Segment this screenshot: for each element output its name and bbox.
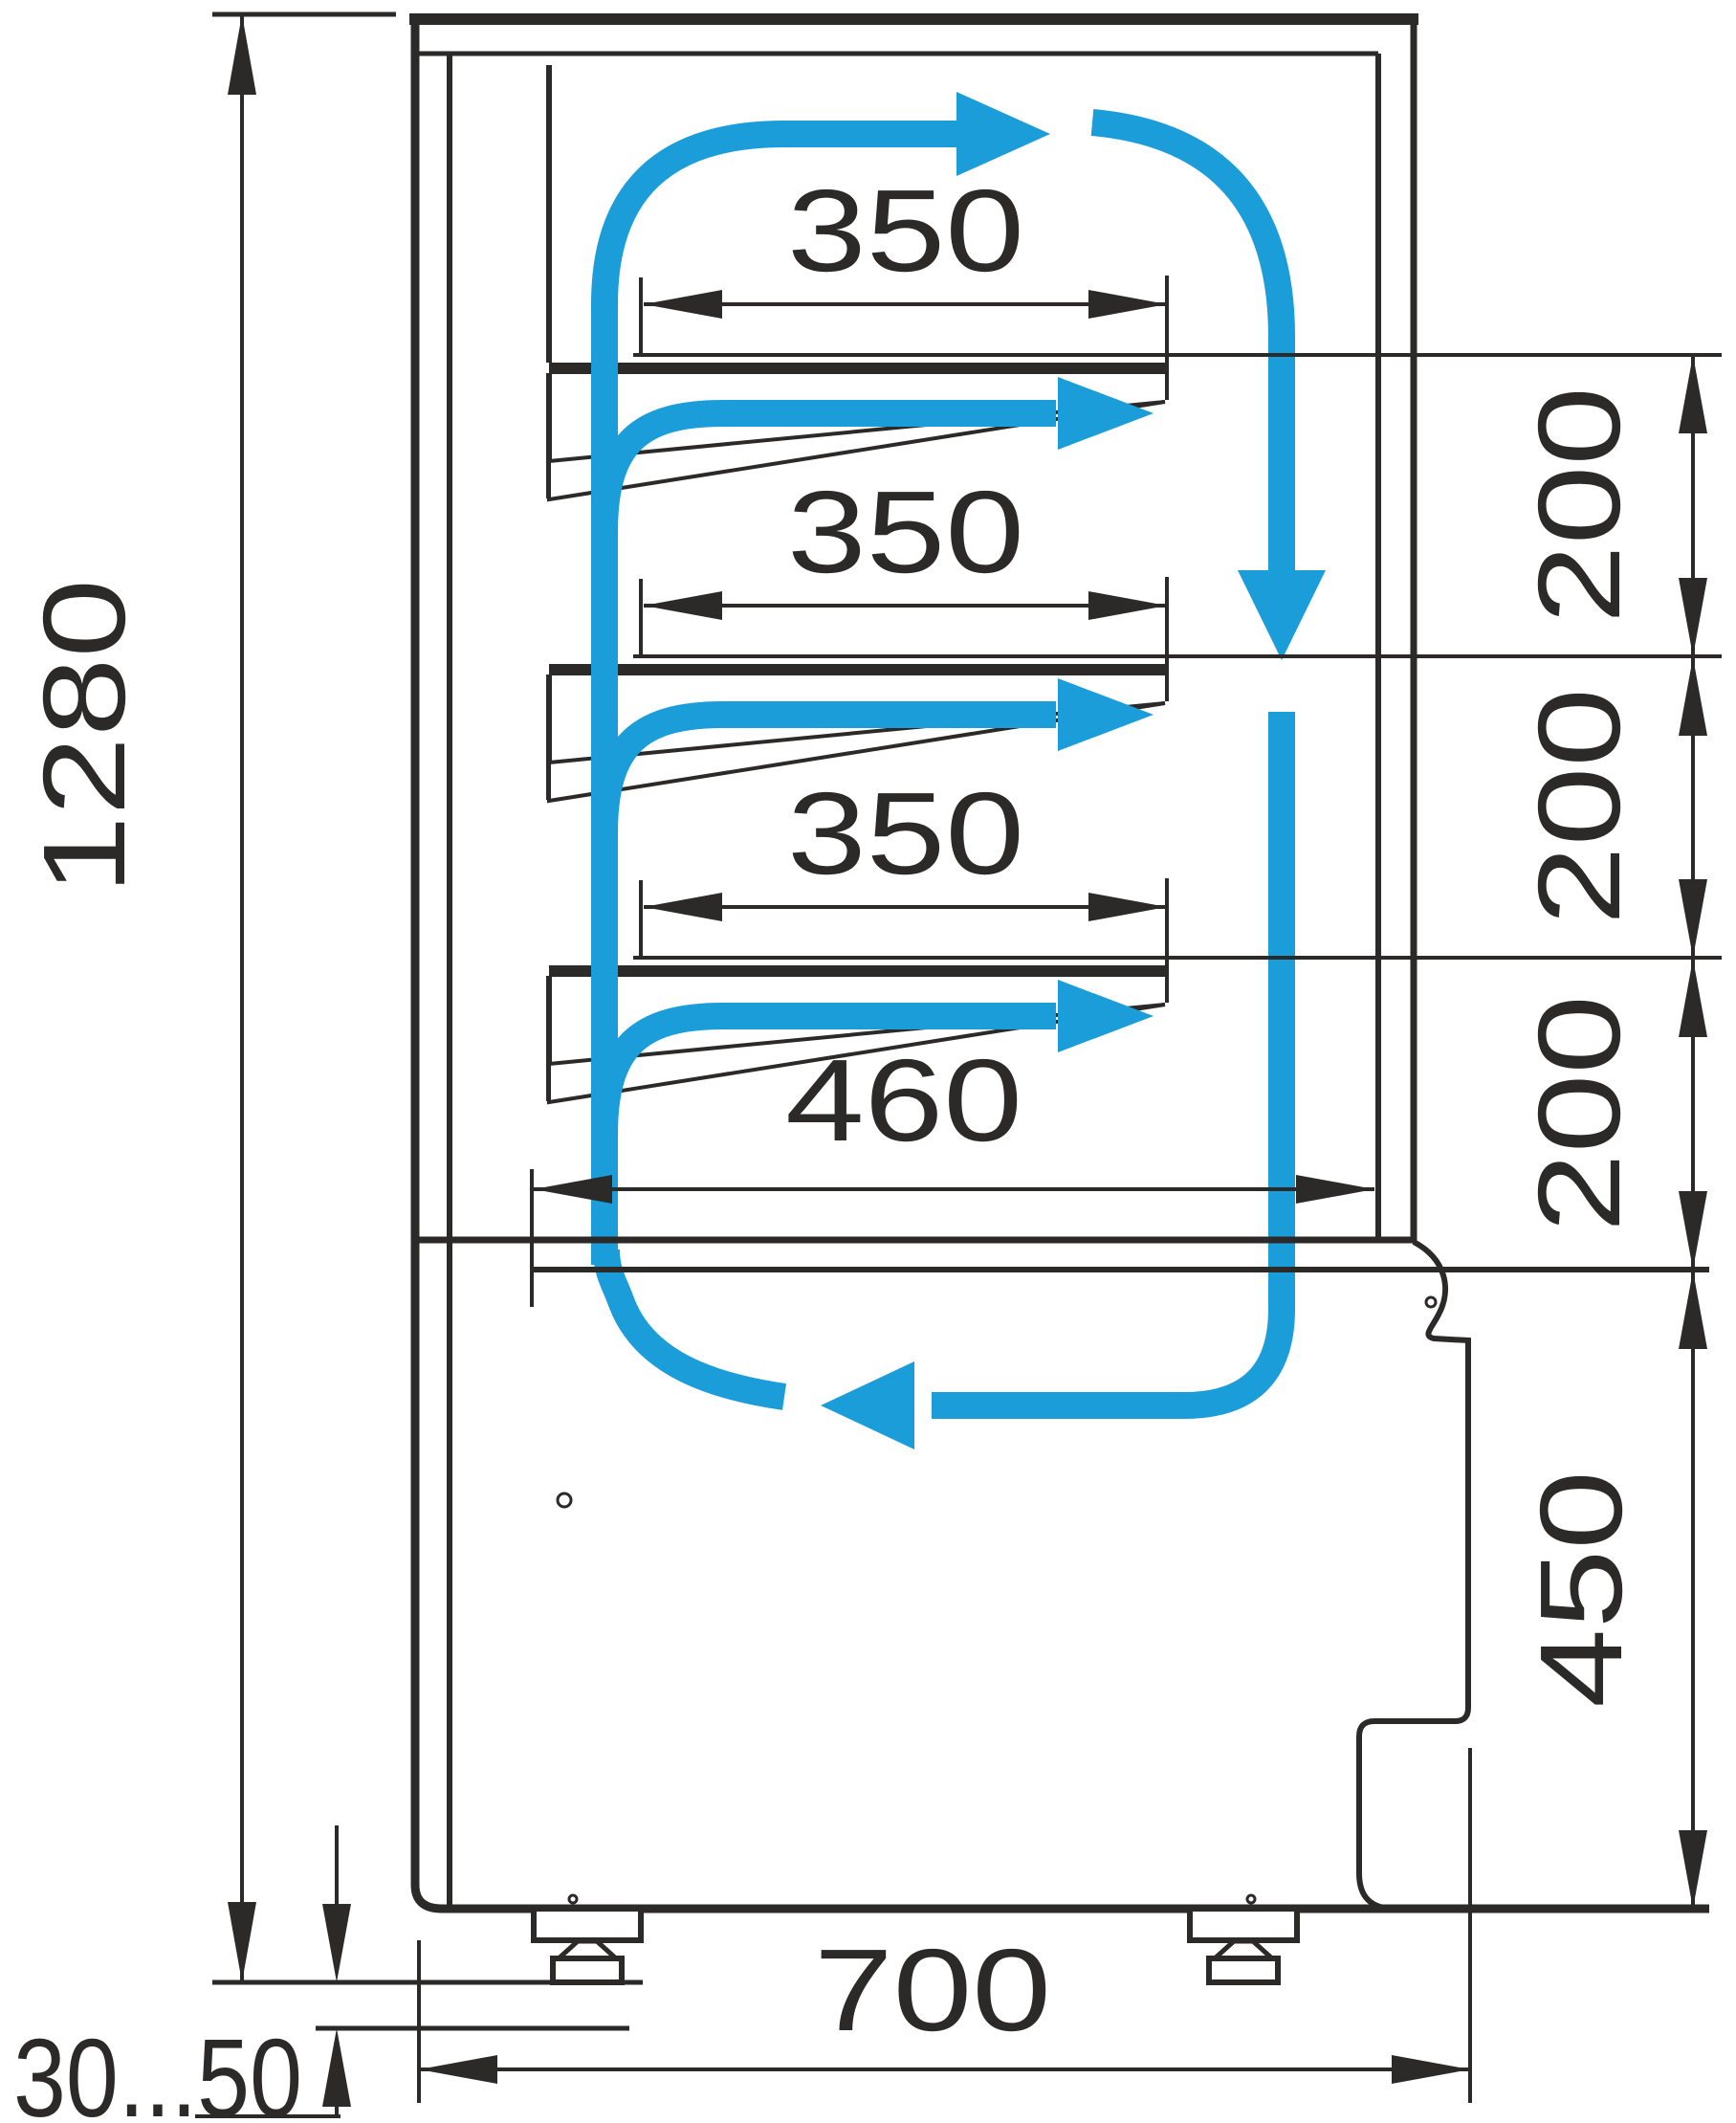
arrow-left-icon xyxy=(644,591,722,620)
arrow-right-icon xyxy=(1088,893,1167,921)
screw-hole-icon xyxy=(1247,1895,1255,1903)
arrow-up-icon xyxy=(1679,959,1707,1037)
base-right-profile xyxy=(1359,1242,1468,1909)
dimension-label: 200 xyxy=(1514,995,1644,1232)
dimension-shelf-gaps: 200 200 200 xyxy=(1514,355,1707,1270)
arrow-up-icon xyxy=(322,2028,351,2107)
dimension-label: 1280 xyxy=(19,579,149,895)
foot-left xyxy=(534,1909,641,1982)
arrow-down-icon xyxy=(322,1904,351,1982)
adjustable-feet xyxy=(212,1909,1297,2028)
airflow-loop-right-upper xyxy=(1092,122,1282,574)
display-case-drawing: 1280 350 350 350 200 200 200 460 xyxy=(0,0,1736,2123)
dimension-label: 200 xyxy=(1514,688,1644,925)
airflow-branch-arrow-1-icon xyxy=(1058,377,1154,450)
dimension-label: 460 xyxy=(785,1035,1022,1165)
arrow-right-icon xyxy=(1088,591,1167,620)
screw-hole-icon xyxy=(558,1493,571,1507)
arrow-left-icon xyxy=(644,290,722,319)
drawing-canvas: 1280 350 350 350 200 200 200 460 xyxy=(0,0,1736,2123)
arrow-up-icon xyxy=(228,14,256,95)
arrow-down-icon xyxy=(1679,1830,1707,1909)
screw-hole-icon xyxy=(569,1895,577,1903)
screw-hole-icon xyxy=(1426,1297,1436,1307)
arrow-right-icon xyxy=(1392,2055,1470,2084)
dimension-label: 30...50 xyxy=(13,2016,302,2123)
arrow-down-icon xyxy=(1679,879,1707,958)
arrow-left-icon xyxy=(419,2055,497,2084)
dimension-label: 450 xyxy=(1516,1471,1646,1708)
dimension-overall-height: 1280 xyxy=(19,14,396,1982)
arrow-up-icon xyxy=(1679,1271,1707,1349)
arrow-left-icon xyxy=(644,893,722,921)
dimension-label: 350 xyxy=(787,467,1024,597)
arrow-up-icon xyxy=(1679,355,1707,433)
arrow-down-icon xyxy=(1679,1191,1707,1270)
foot-right xyxy=(1190,1909,1297,1982)
dimension-label: 700 xyxy=(814,1925,1051,2055)
arrow-down-icon xyxy=(228,1902,256,1982)
dimension-label: 350 xyxy=(787,166,1024,296)
airflow-down-arrow-icon xyxy=(1238,570,1326,660)
arrow-left-icon xyxy=(534,1175,612,1204)
arrow-up-icon xyxy=(1679,657,1707,736)
arrow-right-icon xyxy=(1088,290,1167,319)
airflow-top-arrow-icon xyxy=(956,92,1050,176)
dimension-base-height: 450 xyxy=(1516,1270,1707,1909)
arrow-right-icon xyxy=(1296,1175,1374,1204)
dimension-label: 200 xyxy=(1514,387,1644,624)
arrow-down-icon xyxy=(1679,578,1707,656)
airflow-branch-arrow-3-icon xyxy=(1058,980,1154,1052)
airflow-branch-arrow-2-icon xyxy=(1058,678,1154,751)
airflow-return-arrow-icon xyxy=(821,1361,914,1449)
dimension-label: 350 xyxy=(787,768,1024,898)
dimension-foot-adjustment: 30...50 xyxy=(13,1825,351,2123)
